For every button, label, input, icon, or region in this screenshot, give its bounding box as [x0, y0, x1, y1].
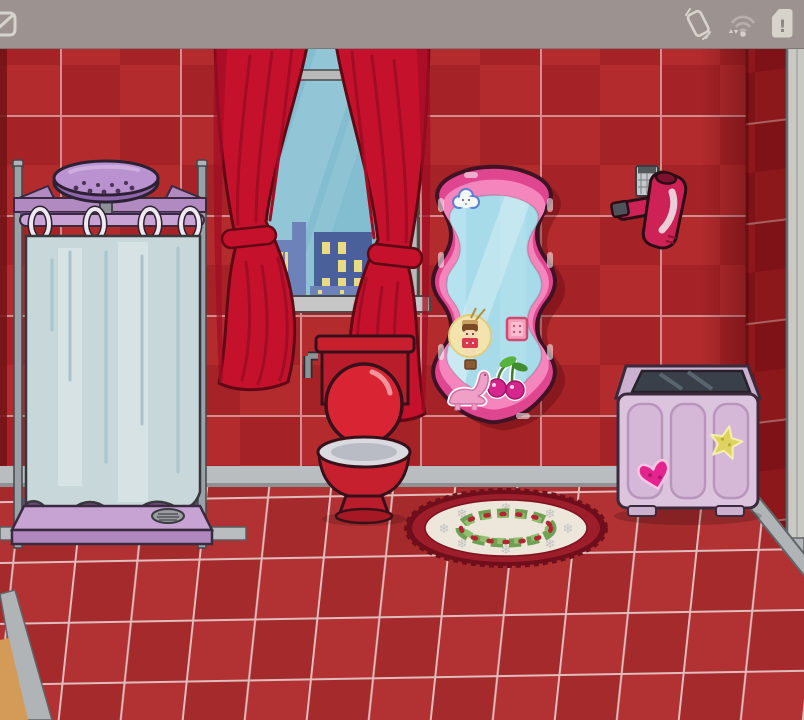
- shower-base: [12, 506, 212, 544]
- square-sticker[interactable]: [507, 318, 527, 340]
- game-screen: ❄ ❄ ❄ ❄ ❄ ❄ ❄ ❄: [0, 0, 804, 720]
- tank-lid: [316, 336, 414, 352]
- status-bar: !: [0, 0, 804, 49]
- notification-partial-icon: [0, 6, 22, 42]
- wifi-data-icon: [724, 6, 758, 42]
- shower-drain: [152, 509, 184, 523]
- svg-text:❄: ❄: [439, 522, 450, 537]
- sim-card-alert-icon: !: [768, 6, 796, 42]
- washer-foot: [628, 506, 656, 516]
- svg-text:❄: ❄: [563, 522, 574, 537]
- bathroom-scene: ❄ ❄ ❄ ❄ ❄ ❄ ❄ ❄: [0, 0, 804, 720]
- svg-text:!: !: [779, 17, 787, 37]
- screen-rotation-icon: [682, 6, 714, 42]
- curtain-tieback: [221, 225, 277, 249]
- dryer-handle-tip: [611, 201, 629, 218]
- washing-machine[interactable]: [614, 366, 762, 525]
- svg-text:❄: ❄: [545, 507, 556, 522]
- washer-foot: [716, 506, 744, 516]
- toilet-seat-lid[interactable]: [326, 364, 402, 444]
- shower-curtain[interactable]: [26, 236, 200, 514]
- status-indicators: !: [682, 6, 796, 42]
- wreath-rug[interactable]: ❄ ❄ ❄ ❄ ❄ ❄ ❄ ❄: [406, 490, 606, 566]
